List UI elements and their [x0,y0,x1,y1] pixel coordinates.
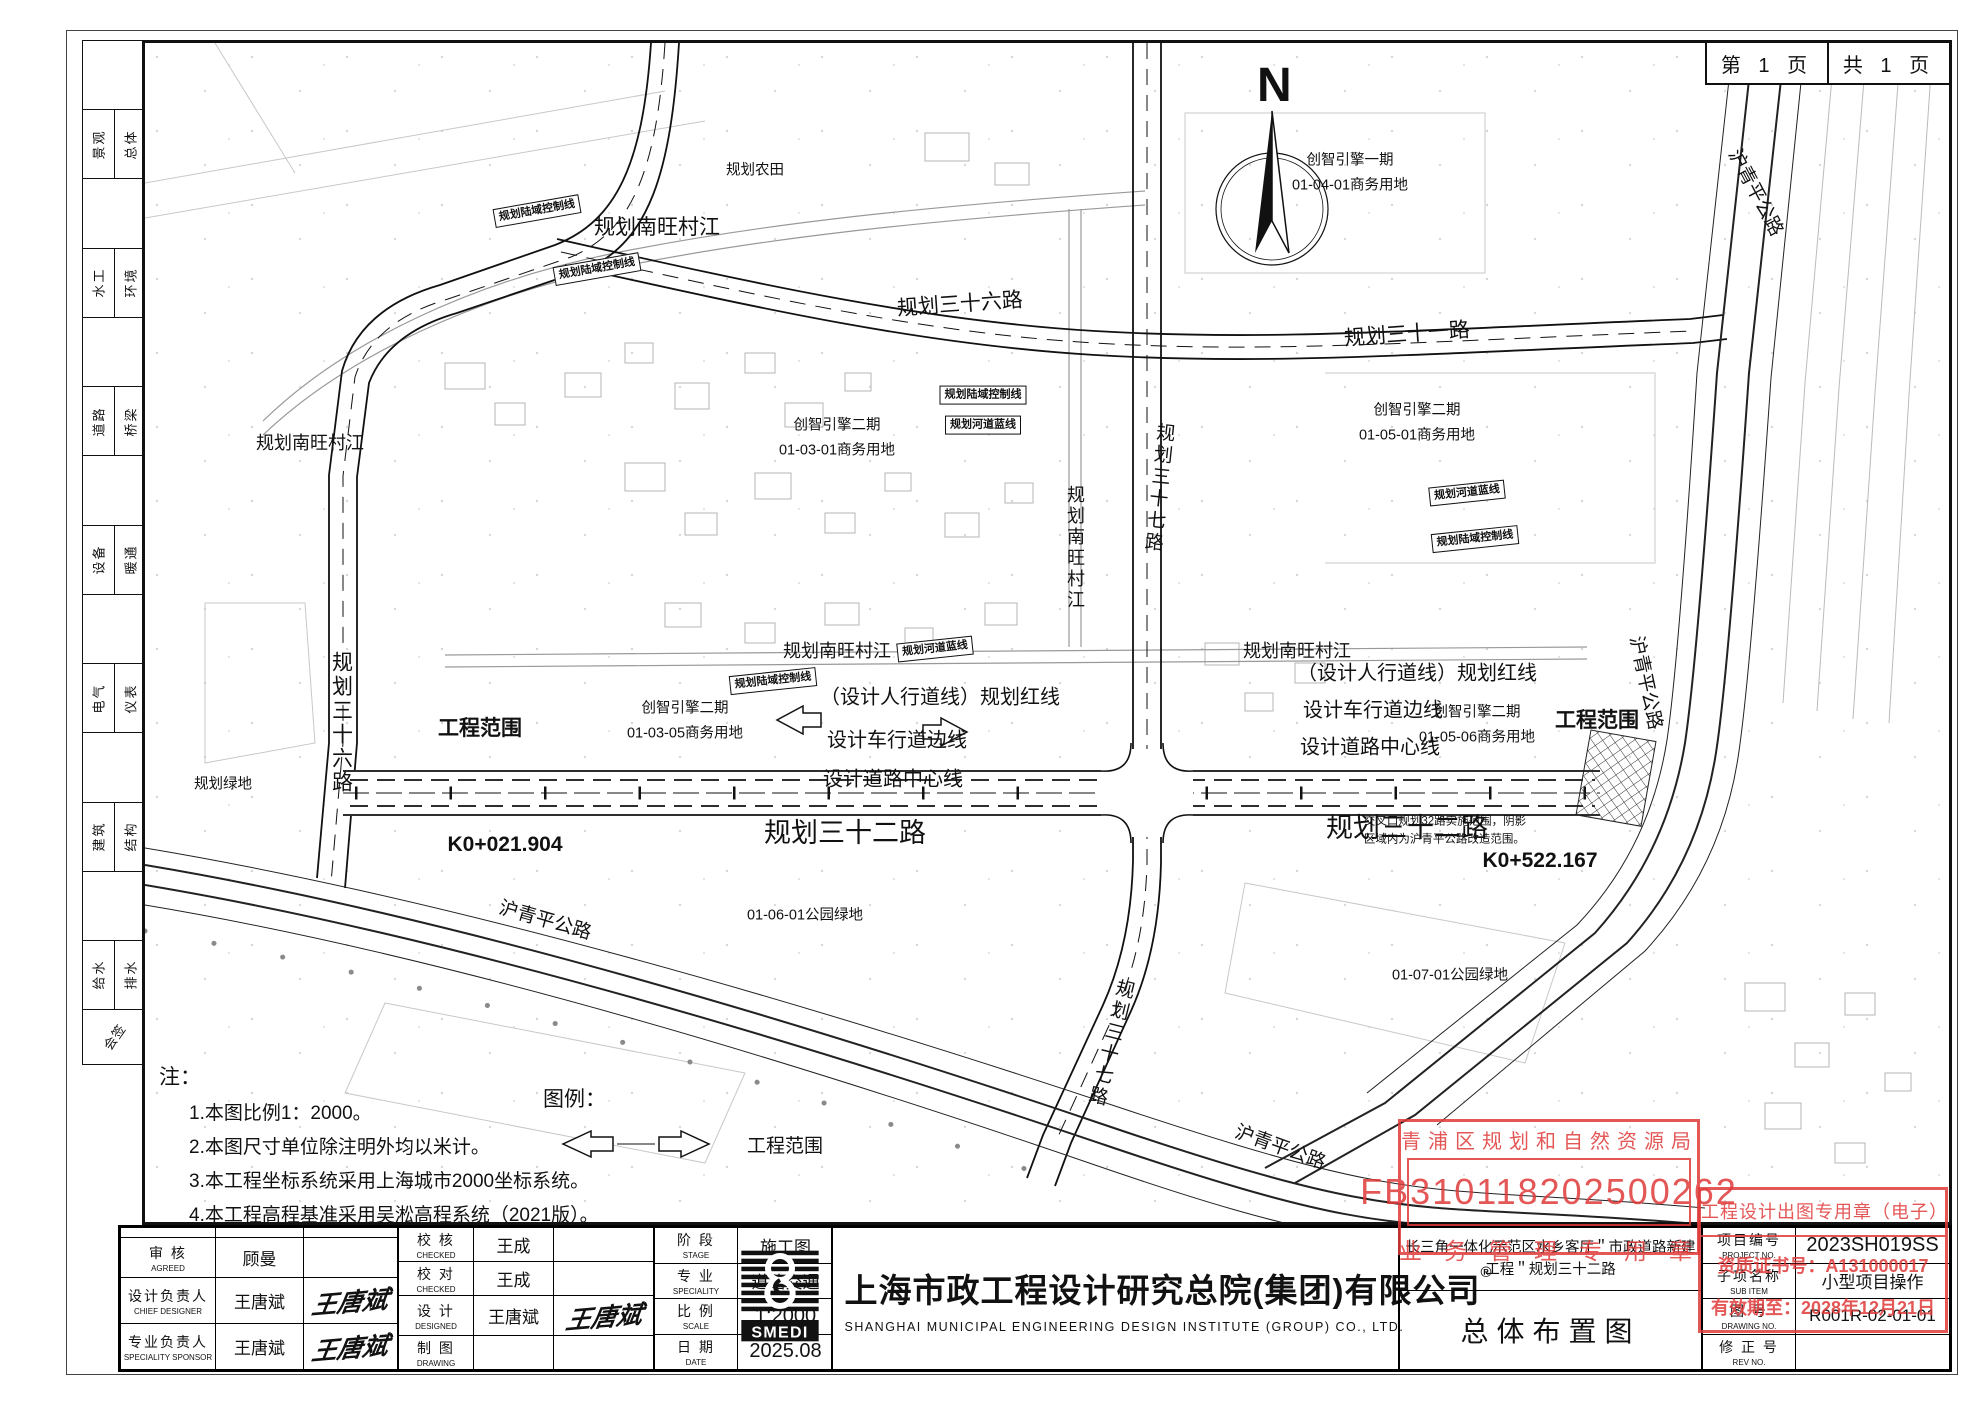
map-label: 规划农田 [726,159,784,184]
strip-pair-architecture: 建筑 结构 [83,803,145,872]
proof-name: 王成 [497,1266,531,1291]
stamp-serial-box: FB310118202500262 [1407,1158,1691,1226]
map-label: 规划南旺村江 [256,431,364,455]
strip-pair-landscape: 景观 总体 [83,110,145,179]
designed-label: 设 计 [417,1301,455,1321]
rev-no-label: 修 正 号 [1719,1337,1779,1357]
discipline-label: 桥梁 [120,406,139,436]
design-stamp-divider [1701,1235,1945,1237]
map-label: 01-07-01公园绿地 [1392,964,1508,989]
map-label: （设计人行道线）规划红线 [820,685,1060,712]
map-label: 规划绿地 [194,773,252,798]
map-labels: 规划南旺村江规划三十六路规划三十一路规划南旺村江规划农田创智引擎一期 01-04… [145,43,1949,1222]
map-label: 规划三十二路 [764,815,926,851]
map-label: 工程范围 [438,715,522,743]
check-label: 校 核 [417,1230,455,1250]
map-label: 沪青平公路 [496,896,594,947]
discipline-label: 给水 [89,960,108,990]
strip-pair-road: 道路 桥梁 [83,387,145,456]
designed-signature: 王唐斌 [563,1295,645,1335]
strip-spacer [83,456,145,525]
discipline-label: 排水 [120,960,139,990]
map-label: 设计车行道边线 [1303,698,1443,725]
smedi-logo: SMEDI [738,1248,822,1349]
map-label: 规划三十六路 [896,286,1024,323]
map-label: 创智引擎二期 01-03-01商务用地 [779,413,895,462]
discipline-label: 暖通 [120,545,139,575]
titleblock-checks: 校 核CHECKED 王成 校 对CHECKED 王成 设 计DESIGNED … [397,1228,653,1369]
company-name-en: SHANGHAI MUNICIPAL ENGINEERING DESIGN IN… [844,1320,1492,1334]
north-letter: N [1257,59,1292,112]
design-stamp-title: 工程设计出图专用章（电子） [1701,1198,1945,1224]
north-arrow: N [1207,59,1337,304]
map-label: 规划三十一路 [1343,316,1471,353]
page-number-table: 第 1 页 共 1 页 [1705,43,1949,85]
strip-pair-hydraulic: 水工 环境 [83,249,145,318]
strip-pair-equipment: 设备 暖通 [83,526,145,595]
design-stamp-divider-bottom [1701,1331,1945,1333]
stamp-purpose-text: 业务管理专用章 [1399,1232,1705,1266]
strip-spacer [83,595,145,664]
map-label: 设计道路中心线 [1300,735,1440,762]
map-label: 规划河道蓝线 [945,416,1021,435]
agreed-name: 顾曼 [243,1245,277,1270]
strip-spacer [83,872,145,941]
page-total: 共 1 页 [1829,43,1949,83]
map-label: 规划三十七路 [1142,421,1175,554]
map-label: （设计人行道线）规划红线 [1297,661,1537,688]
strip-spacer [83,318,145,387]
map-label: 规划陆域控制线 [940,386,1027,405]
countersign-label: 会签 [98,1020,130,1054]
speciality-label: 专 业 [677,1266,715,1286]
discipline-label: 景观 [89,129,108,159]
chief-designer-name: 王唐斌 [234,1288,285,1313]
map-label: 规划南旺村江 [1066,485,1084,611]
discipline-label: 建筑 [89,822,108,852]
discipline-label: 电气 [89,683,108,713]
map-label: 设计车行道边线 [827,728,967,755]
map-label: K0+021.904 [447,831,562,859]
planning-bureau-stamp: 青浦区规划和自然资源局 FB310118202500262 业务管理专用章 [1398,1119,1700,1255]
design-stamp-license: 资质证书号：A131000017 [1701,1252,1945,1278]
note-item: 4.本工程高程基准采用吴淞高程系统（2021版）。 [189,1199,759,1225]
map-label: 规划陆域控制线 [493,194,582,228]
strip-pair-electrical: 电气 仪表 [83,664,145,733]
map-label: 规划陆域控制线 [1431,525,1519,553]
stage-label: 阶 段 [677,1230,715,1250]
designed-name: 王唐斌 [488,1303,539,1328]
strip-pair-water: 给水 排水 [83,941,145,1010]
speciality-sponsor-name: 王唐斌 [234,1334,285,1359]
drawing-label: 制 图 [417,1338,455,1358]
strip-spacer [83,179,145,248]
strip-spacer [83,733,145,802]
titleblock-company: SMEDI 上海市政工程设计研究总院(集团)有限公司® SHANGHAI MUN… [831,1228,1398,1369]
scale-label: 比 例 [677,1301,715,1321]
page-number: 第 1 页 [1707,43,1829,83]
discipline-label: 设备 [89,545,108,575]
map-label: 沪青平公路 [1721,145,1788,241]
map-label: 创智引擎二期 01-03-05商务用地 [627,696,743,745]
discipline-label: 仪表 [120,683,139,713]
discipline-label: 道路 [89,406,108,436]
discipline-label: 总体 [120,129,139,159]
map-label: 规划三十七路 [1085,977,1135,1110]
map-label: K0+522.167 [1482,847,1597,875]
date-label: 日 期 [677,1337,715,1357]
strip-countersign: 会签 [83,1010,145,1064]
map-label: 规划三十二路 [1326,810,1488,846]
design-stamp-validity: 有效期至：2028年12月21日 [1701,1294,1945,1320]
map-label: 规划南旺村江 [1243,639,1351,663]
speciality-sponsor-signature: 王唐斌 [309,1325,391,1367]
map-label: 规划河道蓝线 [896,636,974,663]
map-label: 01-06-01公园绿地 [747,904,863,929]
speciality-sponsor-label: 专业负责人 [128,1332,208,1352]
design-issue-stamp: 工程设计出图专用章（电子） 资质证书号：A131000017 有效期至：2028… [1698,1187,1948,1333]
map-label: 规划南旺村江 [783,639,891,663]
drawing-sheet: 景观 总体 水工 环境 道路 桥梁 设备 暖通 电气 仪表 建筑 结构 给水 [0,0,1985,1403]
stamp-bureau-name: 青浦区规划和自然资源局 [1401,1125,1697,1154]
map-label: 创智引擎二期 01-05-01商务用地 [1359,398,1475,447]
check-name: 王成 [497,1232,531,1257]
stamp-serial-number: FB310118202500262 [1360,1171,1738,1213]
discipline-label: 水工 [89,268,108,298]
scope-arrows-icon [551,1129,721,1159]
chief-designer-signature: 王唐斌 [309,1279,391,1321]
note-item: 3.本工程坐标系统采用上海城市2000坐标系统。 [189,1165,759,1199]
smedi-logo-text: SMEDI [752,1324,809,1341]
titleblock-approvals: 审 核AGREED 顾曼 设计负责人CHIEF DESIGNER 王唐斌 王唐斌… [121,1228,397,1369]
discipline-label: 结构 [120,822,139,852]
map-label: 设计道路中心线 [823,767,963,794]
agreed-label: 审 核 [149,1243,187,1263]
map-label: 工程范围 [1555,707,1639,735]
map-label: 规划陆域控制线 [729,667,817,695]
proof-label: 校 对 [417,1264,455,1284]
map-label: 沪青平公路 [1231,1120,1329,1177]
chief-designer-label: 设计负责人 [128,1286,208,1306]
discipline-strip: 景观 总体 水工 环境 道路 桥梁 设备 暖通 电气 仪表 建筑 结构 给水 [82,40,146,1065]
plan-drawing-area: 规划南旺村江规划三十六路规划三十一路规划南旺村江规划农田创智引擎一期 01-04… [142,40,1952,1225]
legend-scope-label: 工程范围 [747,1131,823,1158]
legend-block: 图例： 工程范围 [543,1083,823,1159]
company-name-cn: 上海市政工程设计研究总院(集团)有限公司® [844,1264,1492,1312]
discipline-label: 环境 [120,268,139,298]
strip-spacer [83,41,145,110]
map-label: 规划三十六路 [331,651,352,795]
map-label: 规划陆域控制线 [553,252,642,286]
drawing-title: 总体布置图 [1400,1291,1701,1369]
legend-title: 图例： [543,1083,823,1113]
map-label: 规划河道蓝线 [1428,480,1506,507]
map-label: 规划南旺村江 [594,214,720,242]
